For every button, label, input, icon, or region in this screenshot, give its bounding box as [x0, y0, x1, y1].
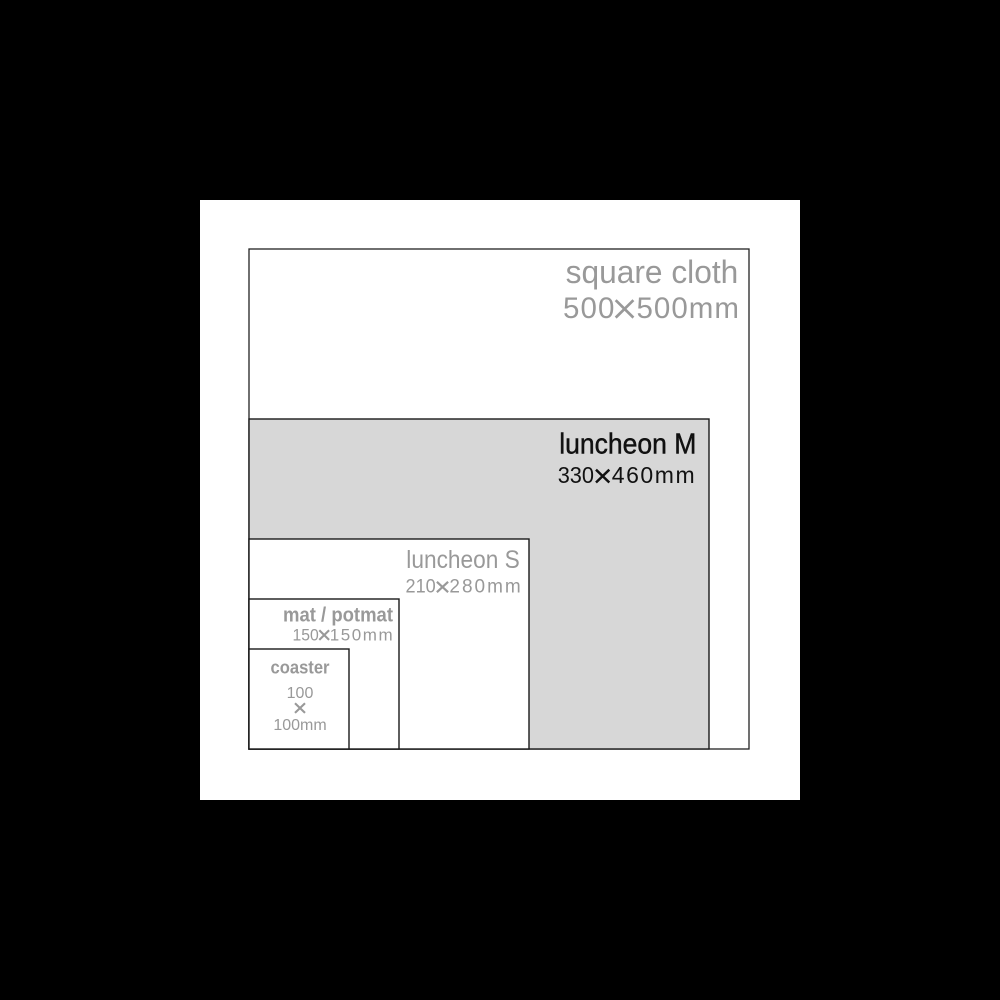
svg-text:460mm: 460mm — [612, 462, 695, 488]
svg-text:luncheon M: luncheon M — [559, 428, 696, 460]
svg-text:mat / potmat: mat / potmat — [283, 604, 393, 626]
svg-text:210: 210 — [406, 577, 436, 598]
svg-text:square cloth: square cloth — [566, 254, 739, 290]
svg-text:500mm: 500mm — [637, 292, 739, 325]
svg-text:100mm: 100mm — [273, 717, 326, 734]
svg-text:coaster: coaster — [271, 657, 330, 677]
svg-text:100: 100 — [287, 685, 314, 702]
svg-text:150: 150 — [293, 626, 319, 645]
svg-text:150mm: 150mm — [330, 626, 393, 645]
svg-text:330: 330 — [558, 462, 594, 488]
svg-text:500: 500 — [563, 292, 614, 325]
svg-text:luncheon S: luncheon S — [406, 546, 520, 574]
